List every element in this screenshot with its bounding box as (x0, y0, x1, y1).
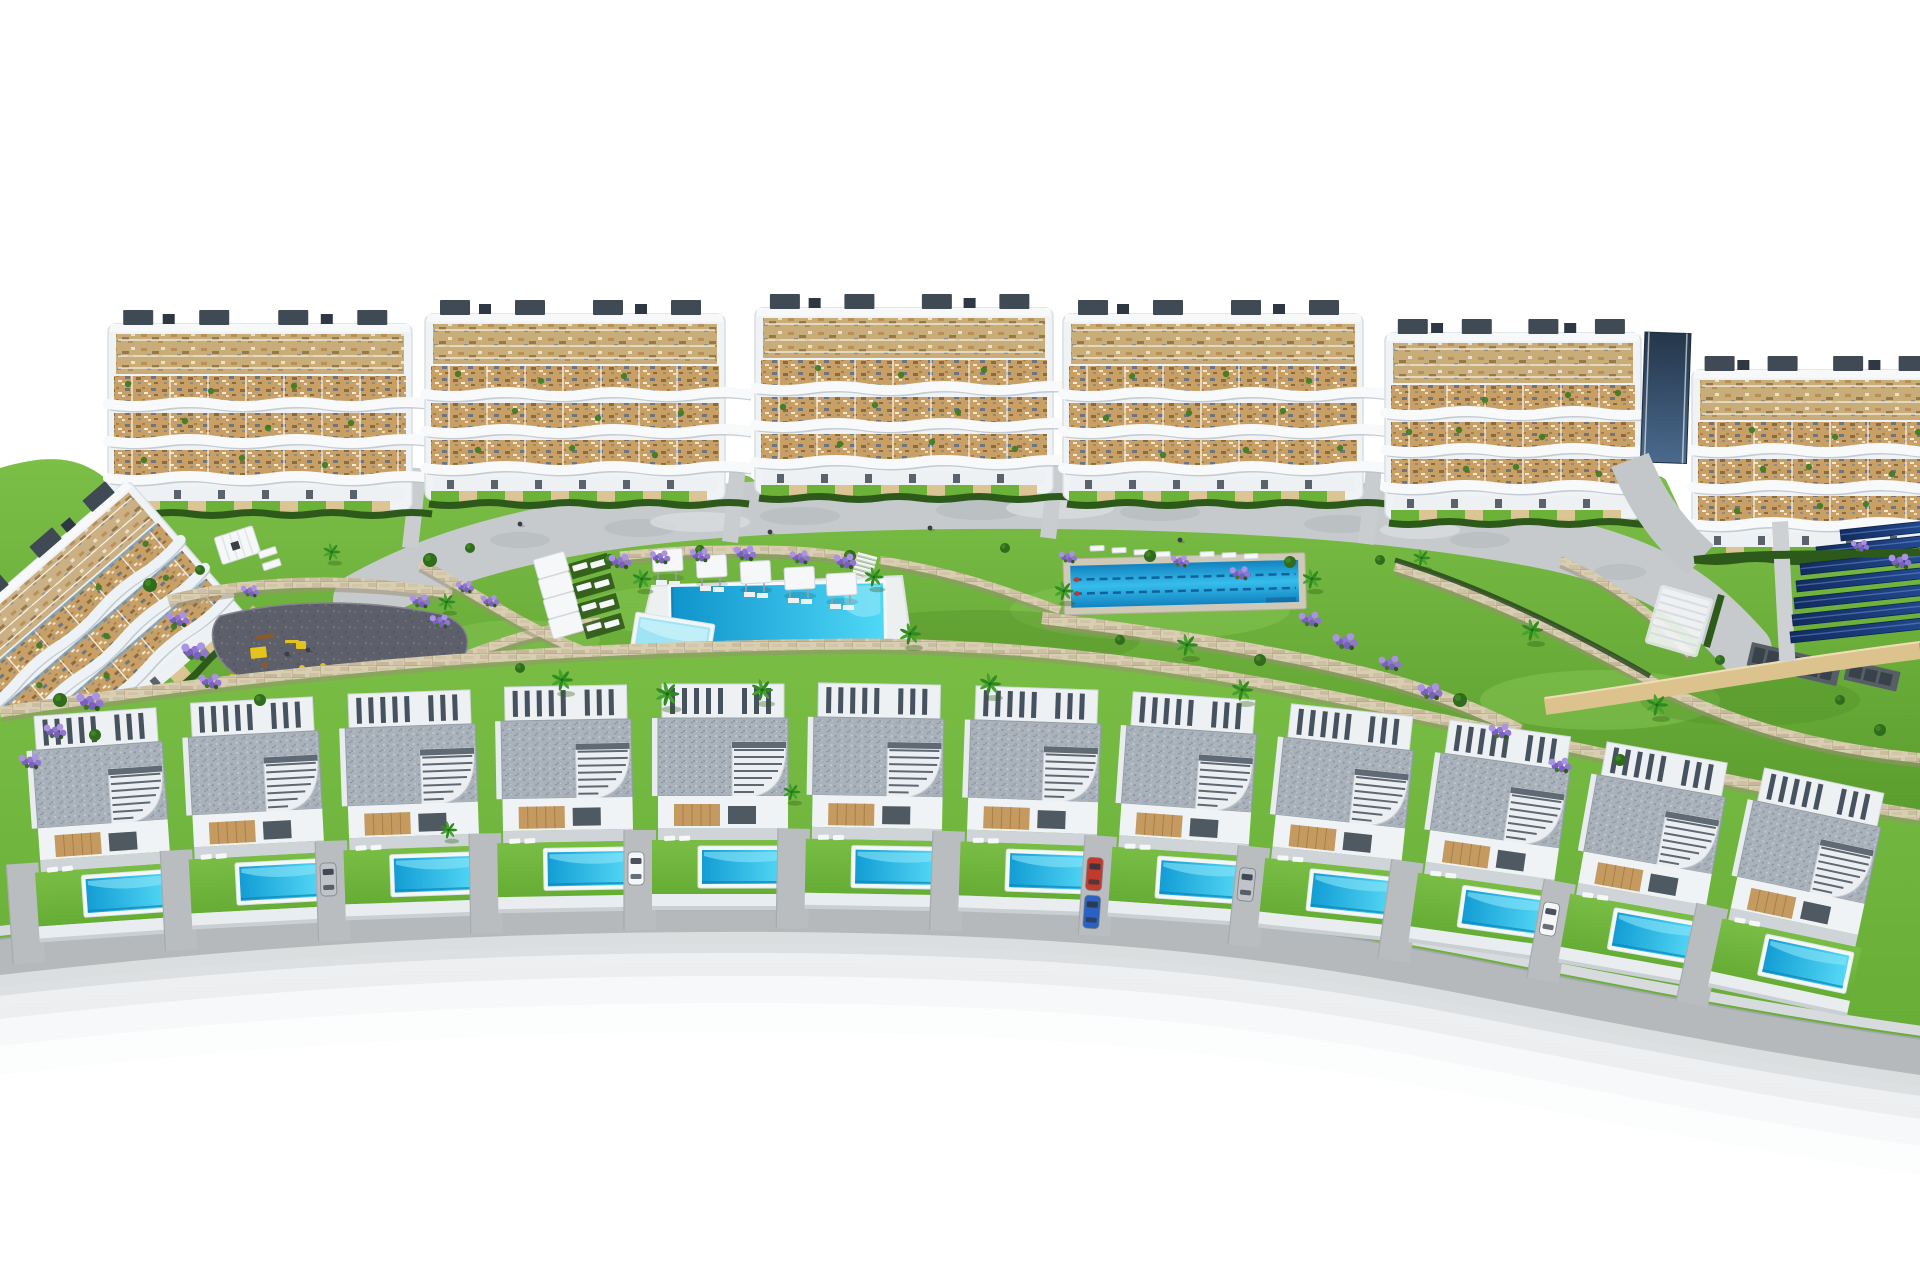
person (306, 648, 311, 653)
sun-lounger (788, 598, 799, 603)
parasol (784, 566, 815, 590)
car (320, 863, 337, 897)
driveway (776, 828, 810, 929)
roof-louver (922, 689, 927, 715)
apartment-block-4 (1063, 300, 1389, 506)
sun-lounger (801, 599, 812, 604)
roof-louver (549, 690, 554, 716)
sun-lounger (1222, 553, 1236, 558)
wood-facade (209, 820, 256, 844)
roof-louver (862, 688, 867, 714)
roof-louver (609, 689, 614, 715)
sun-lounger (757, 593, 768, 598)
person (768, 530, 773, 535)
sun-lounger (656, 580, 667, 585)
roof-louver (428, 695, 434, 721)
roof-louver (1031, 692, 1037, 718)
person (285, 652, 290, 657)
roof-louver (995, 691, 1001, 717)
villa-pool (390, 852, 481, 897)
apartment-block-1 (108, 310, 434, 516)
roof-louver (537, 690, 542, 716)
wood-facade (983, 806, 1030, 830)
apartment-block-2 (425, 300, 751, 506)
window (108, 831, 137, 851)
villa-pool (81, 869, 174, 917)
villa-pool (543, 847, 634, 891)
play-equipment (250, 646, 267, 659)
roof-louver (850, 687, 855, 713)
roof-louver (694, 688, 699, 714)
roof-louver (1067, 693, 1073, 719)
parasol (826, 572, 857, 596)
roof-louver (392, 696, 398, 722)
sun-lounger (830, 604, 841, 609)
person (1178, 538, 1183, 543)
window (882, 806, 910, 824)
window (573, 807, 601, 825)
wood-facade (519, 806, 565, 829)
sun-lounger (700, 586, 711, 591)
window (418, 813, 447, 832)
roof-louver (838, 687, 843, 713)
roof-louver (706, 688, 711, 714)
roof-louver (1055, 693, 1061, 719)
roof-louver (380, 697, 386, 723)
aerial-render-stage (0, 0, 1920, 1280)
sun-lounger (1156, 552, 1170, 557)
roof-louver (1007, 691, 1013, 717)
roof-louver (525, 691, 530, 717)
sun-lounger (1112, 548, 1126, 553)
sun-lounger (1244, 554, 1258, 559)
roof-louver (742, 688, 747, 714)
wood-facade (54, 832, 101, 857)
roof-louver (682, 688, 687, 714)
roof-louver (597, 689, 602, 715)
roof-louver (356, 698, 362, 724)
window (728, 806, 756, 824)
sun-lounger (744, 592, 755, 597)
play-equipment (262, 662, 268, 668)
parasol (740, 560, 771, 584)
roof-louver (1079, 694, 1085, 720)
villa-pool (698, 846, 788, 888)
sun-lounger (843, 605, 854, 610)
roof-louver (452, 694, 458, 720)
sun-lounger (669, 581, 680, 586)
roof-louver (898, 688, 903, 714)
person (518, 522, 523, 527)
apartment-block-3 (755, 294, 1081, 500)
villa-pool (235, 858, 327, 905)
person (928, 526, 933, 531)
wood-facade (828, 803, 874, 826)
roof-louver (368, 697, 374, 723)
window (1037, 810, 1066, 829)
sun-lounger (1200, 552, 1214, 557)
wood-facade (674, 804, 720, 826)
villa-pool (851, 846, 942, 890)
parking-ramp (1640, 332, 1691, 464)
roof-louver (585, 690, 590, 716)
roof-louver (404, 696, 410, 722)
wood-facade (364, 812, 411, 836)
roof-louver (440, 695, 446, 721)
roof-louver (910, 689, 915, 715)
window (263, 820, 292, 839)
car (628, 852, 644, 885)
roof-louver (874, 688, 879, 714)
wood-facade (1135, 812, 1182, 837)
car (1083, 895, 1101, 929)
play-equipment (296, 641, 306, 649)
car (1085, 857, 1103, 891)
roof-louver (1019, 691, 1025, 717)
sun-lounger (1090, 546, 1104, 551)
window (1342, 832, 1372, 853)
roof-louver (718, 688, 723, 714)
window (1189, 818, 1218, 838)
residential-development-render (0, 0, 1920, 1280)
sun-lounger (713, 587, 724, 592)
car (1237, 867, 1256, 901)
roof-louver (826, 687, 831, 713)
roof-louver (766, 688, 771, 714)
roof-louver (513, 691, 518, 717)
